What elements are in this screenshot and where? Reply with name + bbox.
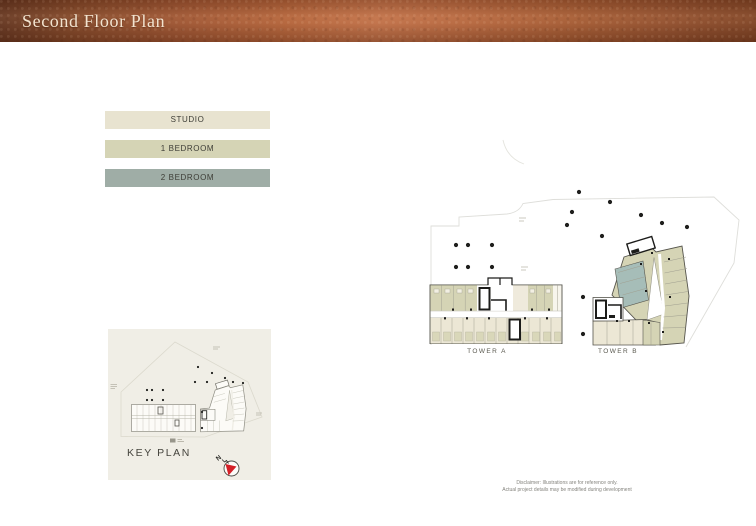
legend-item-1bedroom: 1 BEDROOM [105,140,270,158]
tree-dot [600,234,604,238]
page: { "header": { "title": "Second Floor Pla… [0,0,756,526]
tower-a-label: TOWER A [447,348,527,355]
legend: STUDIO 1 BEDROOM 2 BEDROOM [105,111,270,198]
north-label: N [215,454,223,463]
disclaimer-line2: Actual project details may be modified d… [447,487,687,494]
legend-item-studio: STUDIO [105,111,270,129]
tree-dot [639,213,643,217]
page-title: Second Floor Plan [22,0,165,42]
tower-a-plan [430,278,562,344]
tree-dot [454,243,458,247]
tree-dot [194,381,196,383]
tree-dot [577,190,581,194]
tree-dot [490,243,494,247]
keyplan-tower-b [201,380,247,432]
tree-dot [146,399,148,401]
tree-dot [608,200,612,204]
key-plan-title: KEY PLAN [127,447,191,459]
tower-b-label: TOWER B [578,348,658,355]
tree-dot [151,389,153,391]
legend-item-2bedroom: 2 BEDROOM [105,169,270,187]
disclaimer: Disclaimer: Illustrations are for refere… [447,480,687,493]
tree-dot [685,225,689,229]
tree-dot [206,381,208,383]
tree-dot [565,223,569,227]
tree-dot [224,377,226,379]
tree-dot [660,221,664,225]
tree-dot [466,243,470,247]
tree-dot [454,265,458,269]
keyplan-scale-mark [170,439,184,443]
tree-dot [581,295,585,299]
tree-dot [162,399,164,401]
tree-dot [201,427,203,429]
key-plan-panel: N KEY PLAN [108,329,271,480]
tree-dot [197,366,199,368]
tree-dot [466,265,470,269]
tree-dot [151,399,153,401]
tree-dot [146,389,148,391]
tree-dot [570,210,574,214]
tree-dot [162,389,164,391]
tree-dot [242,382,244,384]
tree-dot [490,265,494,269]
north-compass-icon: N [215,454,239,476]
tower-b-plan [593,236,689,345]
tree-dot [581,332,585,336]
header-band: Second Floor Plan [0,0,756,42]
keyplan-tower-a [132,405,196,432]
tree-dot [211,372,213,374]
floor-plan-drawing [410,135,756,370]
tree-dot [232,381,234,383]
survey-marks [519,218,528,270]
tree-dot [201,411,203,413]
